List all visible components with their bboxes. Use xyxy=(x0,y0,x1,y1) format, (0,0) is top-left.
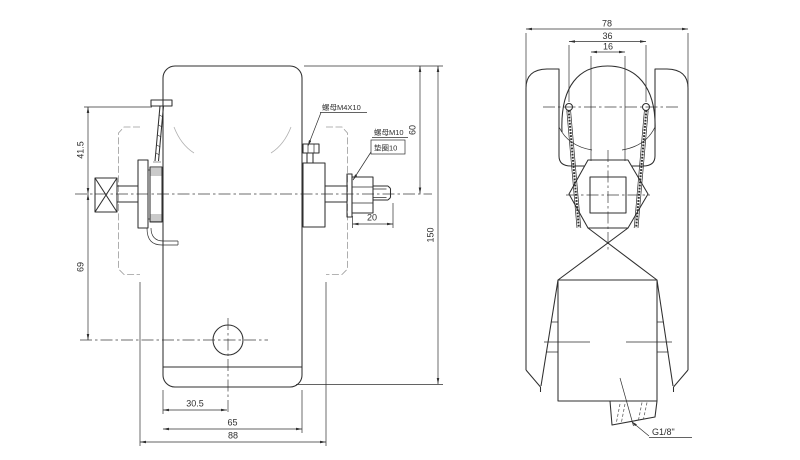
front-view-callouts: 螺母M4X10 螺母M10 垫圈10 xyxy=(308,102,408,180)
side-view: G1/8" 78 36 16 xyxy=(526,19,692,438)
technical-drawing: 41.5 69 60 150 20 30.5 65 xyxy=(0,0,800,460)
front-view-centerlines xyxy=(75,194,432,414)
dim-88: 88 xyxy=(228,431,238,441)
label-pipe-thread: G1/8" xyxy=(652,427,675,437)
m4-bolt-head xyxy=(303,144,319,153)
hex-boss xyxy=(569,160,648,228)
dim-60: 60 xyxy=(408,125,418,135)
front-view-dimensions: 41.5 69 60 150 20 30.5 65 xyxy=(76,66,444,446)
label-nut-m10: 螺母M10 xyxy=(374,127,404,137)
side-view-dimensions: 78 36 16 xyxy=(526,19,688,103)
side-view-hex xyxy=(569,160,648,228)
side-view-centerlines xyxy=(543,107,678,252)
dim-78: 78 xyxy=(602,19,612,29)
dim-41-5: 41.5 xyxy=(76,141,86,159)
drawing-sheet: 41.5 69 60 150 20 30.5 65 xyxy=(0,0,800,460)
dim-20: 20 xyxy=(367,213,377,223)
dim-16: 16 xyxy=(603,42,613,52)
front-view-phantom-panels xyxy=(119,127,348,275)
side-view-port: G1/8" xyxy=(610,378,692,438)
hex-nut xyxy=(352,177,373,213)
label-washer-10: 垫圈10 xyxy=(374,143,397,153)
dim-65: 65 xyxy=(227,418,237,428)
front-view: 41.5 69 60 150 20 30.5 65 xyxy=(75,66,443,446)
front-view-right-assembly xyxy=(303,144,391,227)
front-view-body xyxy=(163,66,302,387)
dim-36: 36 xyxy=(602,31,612,41)
valve-block xyxy=(558,280,657,401)
dim-69: 69 xyxy=(76,262,86,272)
dim-30-5: 30.5 xyxy=(186,399,204,409)
front-view-left-assembly xyxy=(95,100,178,245)
dim-150: 150 xyxy=(426,227,436,242)
label-nut-m4x10: 螺母M4X10 xyxy=(322,102,361,112)
flange xyxy=(303,163,325,227)
strip-tab xyxy=(151,100,172,106)
